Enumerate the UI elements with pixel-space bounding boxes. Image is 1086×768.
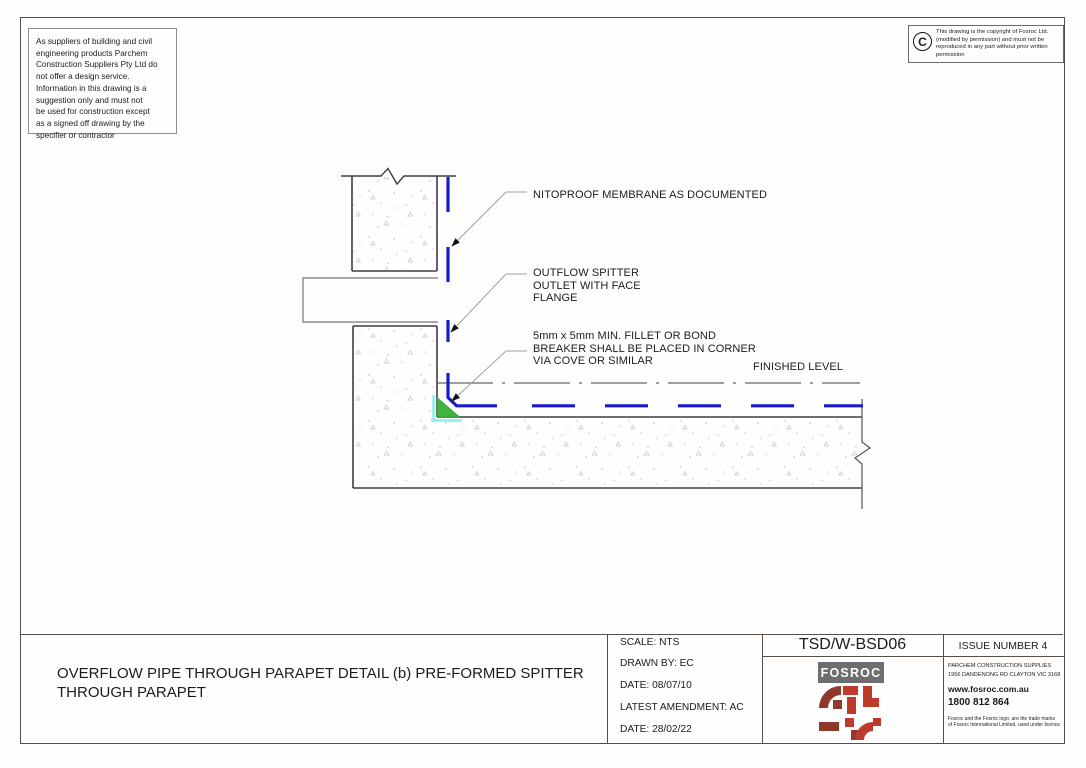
leader-spitter (451, 274, 527, 332)
issue-number: ISSUE NUMBER 4 (943, 640, 1063, 652)
leader-lines (451, 192, 527, 401)
label-spitter: OUTFLOW SPITTER OUTLET WITH FACE FLANGE (533, 267, 641, 305)
supplier-website: www.fosroc.com.au (948, 684, 1029, 694)
supplier-address: 1956 DANDENONG RD CLAYTON VIC 3168 (948, 672, 1060, 678)
drawing-sheet: As suppliers of building and civil engin… (0, 0, 1086, 768)
spitter-channel (303, 278, 438, 322)
label-membrane: NITOPROOF MEMBRANE AS DOCUMENTED (533, 189, 767, 202)
field-drawn-by: DRAWN BY: EC (620, 658, 694, 669)
label-finished-level: FINISHED LEVEL (753, 361, 843, 374)
field-scale: SCALE: NTS (620, 637, 679, 648)
trademark-note: Fosroc and the Fosroc logo, are the trad… (948, 716, 1060, 728)
titleblock-divider-1 (607, 634, 608, 743)
field-date-drawn: DATE: 08/07/10 (620, 680, 692, 691)
field-date-amended: DATE: 28/02/22 (620, 724, 692, 735)
fosroc-logo-icon (817, 684, 885, 742)
label-fillet: 5mm x 5mm MIN. FILLET OR BOND BREAKER SH… (533, 330, 756, 368)
fosroc-logo-wordmark: FOSROC (818, 662, 884, 683)
leader-fillet (452, 351, 527, 401)
drawing-number: TSD/W-BSD06 (762, 636, 943, 654)
drawing-title: OVERFLOW PIPE THROUGH PARAPET DETAIL (b)… (57, 664, 597, 702)
supplier-name: PARCHEM CONSTRUCTION SUPPLIES (948, 663, 1051, 669)
parapet-wall-upper (341, 169, 456, 272)
field-latest-amendment: LATEST AMENDMENT: AC (620, 702, 744, 713)
leader-membrane (452, 192, 527, 246)
supplier-phone: 1800 812 864 (948, 697, 1009, 708)
titleblock-divider-4 (762, 656, 1064, 657)
